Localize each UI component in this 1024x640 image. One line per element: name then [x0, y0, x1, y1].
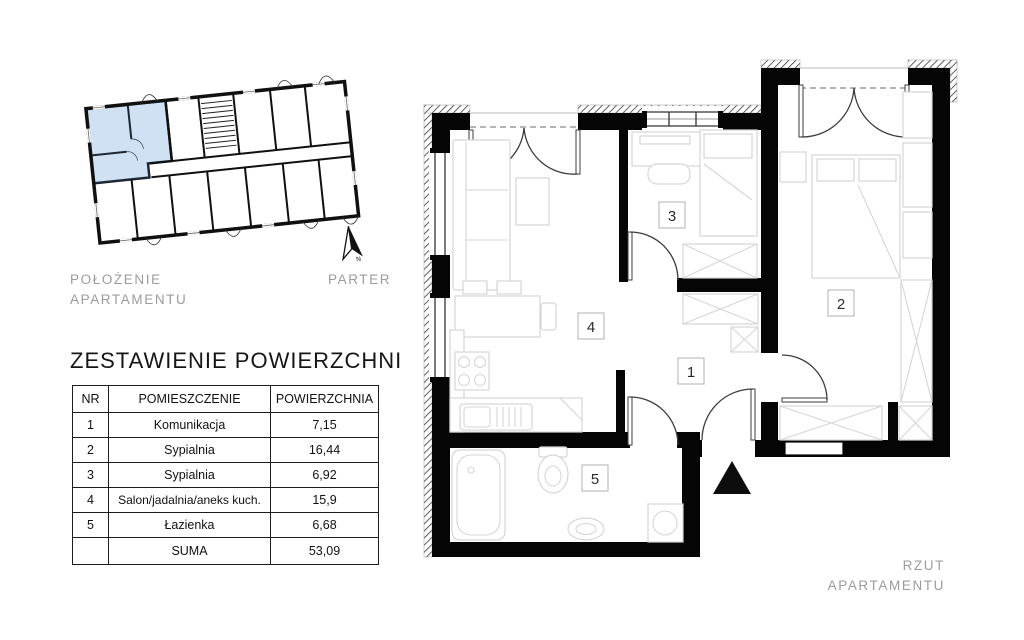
door-entrance: [702, 389, 755, 440]
col-header-area: POWIERZCHNIA: [271, 386, 379, 413]
floor-label: PARTER: [328, 270, 391, 290]
table-row: 1 Komunikacja 7,15: [73, 413, 379, 438]
room-label-2: 2: [828, 290, 854, 316]
cell-area: 6,92: [271, 463, 379, 488]
north-label: N: [356, 256, 362, 264]
table-row: 3 Sypialnia 6,92: [73, 463, 379, 488]
table-row: 4 Salon/jadalnia/aneks kuch. 15,9: [73, 488, 379, 513]
balcony-door-bedroom2: [799, 85, 909, 137]
cell-room: Sypialnia: [109, 438, 271, 463]
area-table-title: ZESTAWIENIE POWIERZCHNI: [70, 348, 402, 374]
room-label-4: 4: [578, 313, 604, 339]
table-row: 2 Sypialnia 16,44: [73, 438, 379, 463]
cell-nr: 4: [73, 488, 109, 513]
staircase: [201, 100, 237, 148]
room-label-3: 3: [659, 202, 685, 228]
location-caption-line1: POŁOŻENIE: [70, 270, 187, 290]
cell-nr: 5: [73, 513, 109, 538]
cell-area: 15,9: [271, 488, 379, 513]
cell-total-label: SUMA: [109, 538, 271, 565]
cell-total-value: 53,09: [271, 538, 379, 565]
wall-niche: [785, 442, 843, 455]
window-left-2: [429, 293, 452, 382]
cell-room: Łazienka: [109, 513, 271, 538]
building-outline: [83, 74, 361, 251]
col-header-nr: NR: [73, 386, 109, 413]
highlighted-apartment: [86, 100, 173, 183]
cell-nr-empty: [73, 538, 109, 565]
col-header-room: POMIESZCZENIE: [109, 386, 271, 413]
page: { "location_plan": { "caption_line1": "P…: [0, 0, 1024, 640]
cell-nr: 2: [73, 438, 109, 463]
building-location-plan: N: [72, 58, 372, 270]
table-row: 5 Łazienka 6,68: [73, 513, 379, 538]
svg-text:3: 3: [668, 208, 676, 225]
north-arrow-icon: N: [339, 225, 364, 265]
svg-text:1: 1: [687, 364, 695, 381]
table-total-row: SUMA 53,09: [73, 538, 379, 565]
apartment-floor-plan: 1 2 3 4 5: [418, 52, 966, 572]
room-label-5: 5: [582, 465, 608, 491]
location-caption-line2: APARTAMENTU: [70, 290, 187, 310]
window-room3: [642, 106, 723, 132]
cell-area: 6,68: [271, 513, 379, 538]
cell-area: 7,15: [271, 413, 379, 438]
cell-nr: 1: [73, 413, 109, 438]
svg-text:5: 5: [591, 471, 599, 488]
cell-room: Komunikacja: [109, 413, 271, 438]
table-header-row: NR POMIESZCZENIE POWIERZCHNIA: [73, 386, 379, 413]
cell-nr: 3: [73, 463, 109, 488]
entrance-marker: [713, 461, 751, 494]
floor-plan-caption: RZUT APARTAMENTU: [805, 556, 945, 596]
door-room3: [628, 232, 678, 280]
cell-area: 16,44: [271, 438, 379, 463]
door-bedroom2: [782, 355, 827, 402]
window-left-1: [429, 148, 452, 260]
cell-room: Sypialnia: [109, 463, 271, 488]
door-bathroom: [628, 397, 678, 445]
svg-text:2: 2: [837, 296, 845, 313]
area-table: NR POMIESZCZENIE POWIERZCHNIA 1 Komunika…: [72, 385, 379, 565]
svg-text:4: 4: [587, 319, 595, 336]
cell-room: Salon/jadalnia/aneks kuch.: [109, 488, 271, 513]
location-caption: POŁOŻENIE APARTAMENTU: [70, 270, 187, 310]
room-label-1: 1: [678, 358, 704, 384]
